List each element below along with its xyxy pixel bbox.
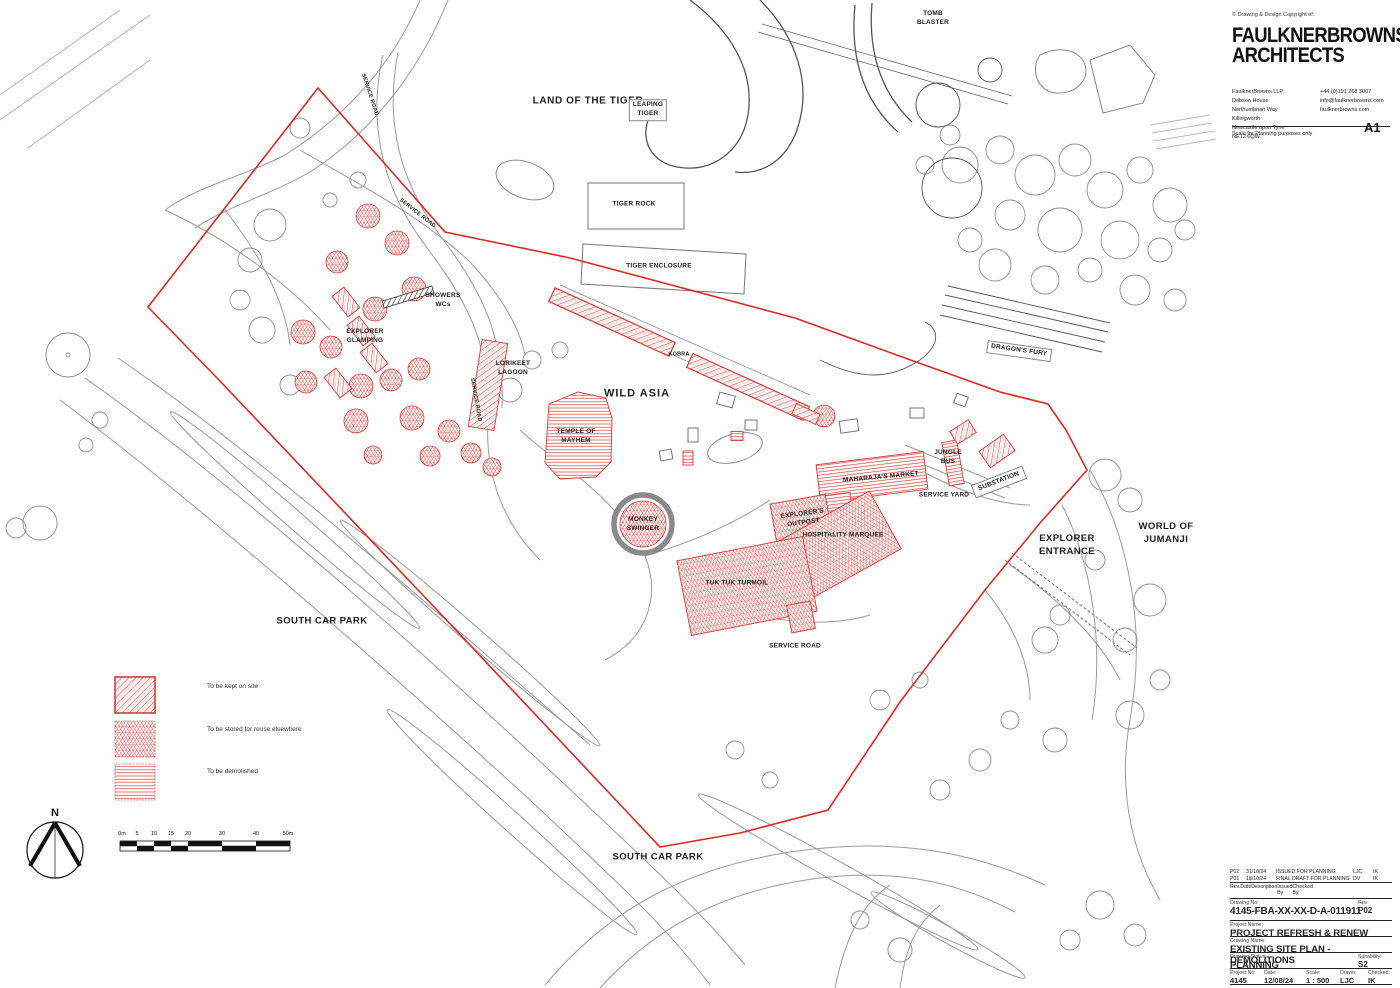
map-label-lorikeet-lagoon: LORIKEET LAGOON <box>496 360 530 378</box>
status-section: Drawing Status: PLANNING Suitability: S2 <box>1230 952 1392 968</box>
drawing-no-value: 4145-FBA-XX-XX-D-A-011911 <box>1230 906 1361 917</box>
checked-value: IK <box>1368 976 1376 985</box>
map-label-explorer-glamping: EXPLORER GLAMPING <box>346 328 383 346</box>
map-label-land-of-the-tiger: LAND OF THE TIGER <box>533 94 644 108</box>
rev-checked-cell: IK <box>1373 869 1392 875</box>
map-label-wild-asia: WILD ASIA <box>604 387 670 402</box>
map-label-world-of-jumanji: WORLD OF JUMANJI <box>1139 521 1194 547</box>
legend-label-kept: To be kept on site <box>207 683 258 691</box>
roads-layer <box>0 0 1216 988</box>
map-label-service-road-4: SERVICE ROAD <box>769 643 821 652</box>
checked-header: Checked By <box>1293 884 1313 898</box>
rev-header: Rev. <box>1230 884 1240 898</box>
scale-tick-5: 5 <box>135 831 138 837</box>
scale-tick-40: 40 <box>253 831 259 837</box>
legend-swatches <box>115 677 155 800</box>
rev-issued-cell: LJC <box>1353 869 1373 875</box>
date-header: Date <box>1240 884 1251 898</box>
map-label-tiger-enclosure: TIGER ENCLOSURE <box>626 263 691 272</box>
scale-bar <box>120 841 290 851</box>
rev-date-cell: 31/10/24 <box>1246 869 1276 875</box>
map-label-showers-wcs: SHOWERS WCs <box>426 292 461 310</box>
map-label-hospitality-marquee: HOSPITALITY MARQUEE <box>802 532 883 541</box>
title-block: P02 31/10/24 ISSUED FOR PLANNING LJC IK … <box>1230 868 1392 985</box>
project-name-section: Project Name: PROJECT REFRESH & RENEW <box>1230 920 1392 936</box>
project-no-value: 4145 <box>1230 976 1247 985</box>
drawn-value: LJC <box>1340 976 1354 985</box>
rev-desc-cell: FINAL DRAFT FOR PLANNING <box>1276 876 1353 882</box>
rev-cell: P01 <box>1230 876 1246 882</box>
map-label-service-yard: SERVICE YARD <box>919 492 969 501</box>
project-info-section: Project No: 4145 Date: 12/08/24 Scale: 1… <box>1230 968 1392 985</box>
scale-tick-30: 30 <box>219 831 225 837</box>
revision-row: P01 18/10/24 FINAL DRAFT FOR PLANNING DV… <box>1230 875 1392 883</box>
legend-label-stored: To be stored for reuse elsewhere <box>207 726 302 734</box>
date-value: 12/08/24 <box>1264 976 1293 985</box>
scale-value: 1 : 500 <box>1306 976 1329 985</box>
map-label-tuk-tuk-turmoil: TUK TUK TURMOIL <box>706 580 769 589</box>
issued-header: Issued By <box>1277 884 1292 898</box>
architect-contact: +44 (0)191 268 3007 info@faulknerbrowns.… <box>1320 88 1384 115</box>
scale-tick-0: 0m <box>118 831 126 837</box>
rev-checked-cell: IK <box>1373 876 1392 882</box>
scale-note: Scale for Planning purposes only <box>1232 131 1312 137</box>
description-header: Description <box>1251 884 1277 898</box>
north-arrow-icon <box>27 822 83 878</box>
title-panel: © Drawing & Design Copyright of: FAULKNE… <box>1228 0 1396 988</box>
paper-size-label: A1 <box>1364 120 1381 135</box>
copyright-note: © Drawing & Design Copyright of: <box>1232 12 1314 18</box>
map-label-south-car-park-1: SOUTH CAR PARK <box>277 616 368 629</box>
map-label-explorer-entrance: EXPLORER ENTRANCE <box>1039 533 1095 559</box>
map-label-leaping-tiger: LEAPING TIGER <box>629 99 667 121</box>
rev-value: P02 <box>1358 906 1372 915</box>
north-label: N <box>51 807 59 819</box>
map-label-kobra: KOBRA <box>668 351 689 358</box>
site-plan-drawing <box>0 0 1228 988</box>
scale-tick-50: 50m <box>283 831 294 837</box>
scale-tick-10: 10 <box>151 831 157 837</box>
map-label-tiger-rock: TIGER ROCK <box>613 201 656 210</box>
map-label-temple-of-mayhem: TEMPLE OF MAYHEM <box>557 428 596 446</box>
scale-tick-20: 20 <box>185 831 191 837</box>
scale-tick-15: 15 <box>168 831 174 837</box>
drawing-name-section: Drawing Name: EXISTING SITE PLAN - DEMOL… <box>1230 936 1392 952</box>
drawing-no-section: Drawing No: 4145-FBA-XX-XX-D-A-011911 Re… <box>1230 898 1392 920</box>
map-label-jungle-bus: JUNGLE BUS <box>934 449 962 467</box>
rev-date-cell: 18/10/24 <box>1246 876 1276 882</box>
map-label-south-car-park-2: SOUTH CAR PARK <box>613 852 704 865</box>
map-label-monkey-swinger: MONKEY SWINGER <box>627 516 659 534</box>
rev-issued-cell: DV <box>1353 876 1373 882</box>
revision-header-row: Rev. Date Description Issued By Checked … <box>1230 883 1392 898</box>
drawing-sheet: LAND OF THE TIGER LEAPING TIGER TOMB BLA… <box>0 0 1400 988</box>
legend-label-demolished: To be demolished <box>207 768 258 776</box>
revision-row: P02 31/10/24 ISSUED FOR PLANNING LJC IK <box>1230 868 1392 875</box>
map-label-tomb-blaster: TOMB BLASTER <box>917 10 949 28</box>
architect-logo: FAULKNERBROWNS ARCHITECTS <box>1232 26 1400 66</box>
rev-cell: P02 <box>1230 869 1246 875</box>
rev-desc-cell: ISSUED FOR PLANNING <box>1276 869 1353 875</box>
